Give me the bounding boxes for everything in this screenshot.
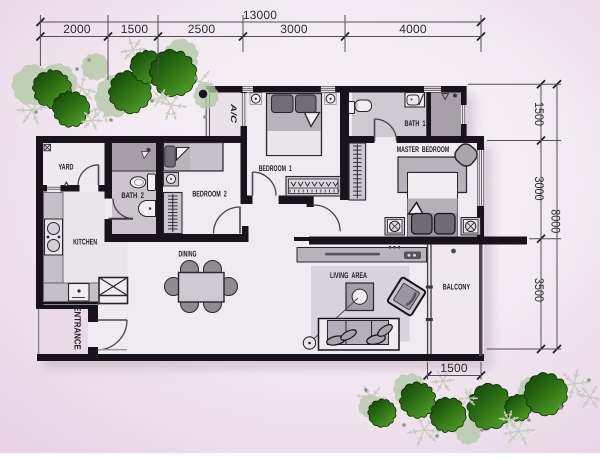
svg-text:3000: 3000 [280,22,308,36]
svg-text:BATH 1: BATH 1 [405,119,426,128]
svg-text:BALCONY: BALCONY [443,283,471,292]
svg-text:1500: 1500 [121,22,149,36]
svg-text:DINING: DINING [179,250,197,259]
svg-text:MASTER BEDROOM: MASTER BEDROOM [397,145,450,154]
svg-text:2500: 2500 [188,22,216,36]
svg-text:1500: 1500 [532,102,546,126]
svg-text:A/C: A/C [229,103,238,125]
svg-text:KITCHEN: KITCHEN [73,238,97,247]
svg-text:3000: 3000 [532,177,546,201]
svg-text:2000: 2000 [63,22,91,36]
svg-text:4000: 4000 [399,22,427,36]
svg-text:LIVING AREA: LIVING AREA [330,271,367,280]
svg-text:3500: 3500 [532,278,546,302]
svg-text:YARD: YARD [59,163,74,172]
svg-text:8000: 8000 [549,209,563,233]
svg-text:BEDROOM 1: BEDROOM 1 [259,164,292,173]
svg-text:BATH 2: BATH 2 [121,191,144,200]
svg-text:1500: 1500 [440,361,468,375]
svg-text:BEDROOM 2: BEDROOM 2 [192,189,227,198]
svg-text:ENTRANCE: ENTRANCE [73,306,83,350]
svg-text:13000: 13000 [243,8,277,22]
